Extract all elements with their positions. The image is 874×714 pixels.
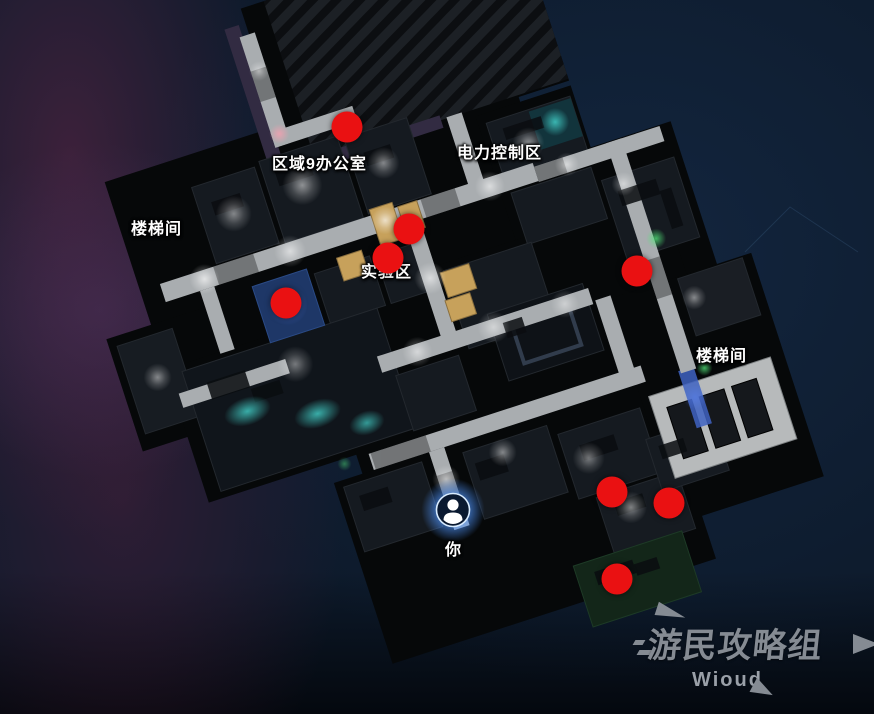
objective-marker (622, 256, 653, 287)
game-map-screen: 区域9办公室电力控制区楼梯间实验区楼梯间 你 游民攻略组 Wioud (0, 0, 874, 714)
objective-marker (373, 243, 404, 274)
objective-marker (394, 214, 425, 245)
background-outline (745, 207, 858, 252)
area-label-power-control: 电力控制区 (457, 139, 542, 163)
player-label: 你 (445, 536, 461, 560)
player-marker: 你 (430, 487, 476, 533)
objective-marker (597, 477, 628, 508)
objective-marker (271, 288, 302, 319)
watermark-subtitle: Wioud (692, 669, 863, 692)
area-label-stairwell-left: 楼梯间 (131, 215, 182, 239)
watermark-title: 游民攻略组 (645, 618, 865, 667)
objective-marker (654, 488, 685, 519)
watermark: 游民攻略组 Wioud (648, 618, 863, 692)
watermark-arrow-icon (853, 634, 874, 654)
objective-marker (602, 564, 633, 595)
area-label-area9-office: 区域9办公室 (272, 150, 367, 174)
player-person-icon (430, 487, 476, 533)
objective-marker (332, 112, 363, 143)
area-label-stairwell-right: 楼梯间 (696, 342, 747, 366)
